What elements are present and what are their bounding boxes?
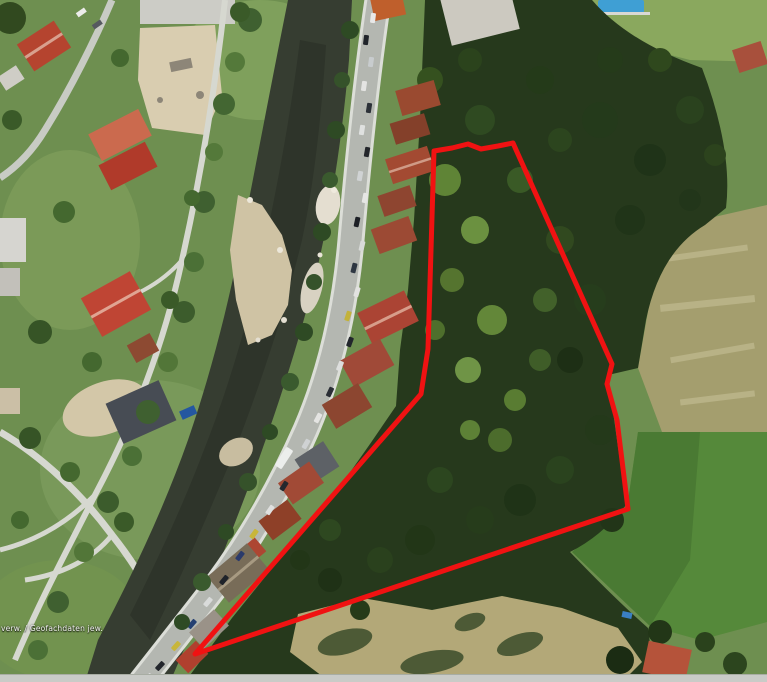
aerial-imagery bbox=[0, 0, 767, 682]
aerial-map[interactable]: verw. / Geofachdaten jew. bbox=[0, 0, 767, 682]
map-attribution: verw. / Geofachdaten jew. bbox=[1, 624, 103, 633]
bottom-edge-bar bbox=[0, 674, 767, 682]
swimming-pool bbox=[598, 0, 644, 13]
